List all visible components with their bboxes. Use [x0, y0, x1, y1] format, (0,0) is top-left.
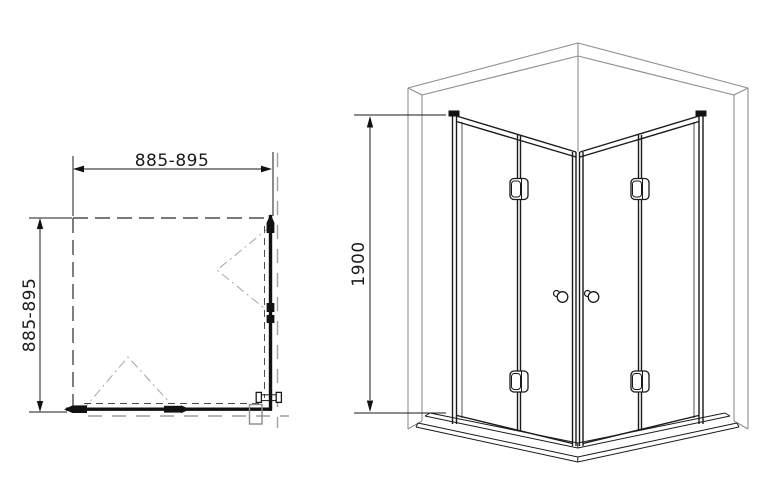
door-hinge-left-bottom — [510, 371, 528, 392]
plan-view: 885-895 885-895 — [20, 151, 289, 428]
door-hinge-right-bottom — [631, 371, 649, 392]
door-knob-left — [554, 291, 568, 303]
plan-outer-wall-lines — [88, 153, 289, 428]
plan-fold-swing-right — [217, 226, 271, 308]
door-knob-right — [585, 291, 599, 303]
plan-width-dimension: 885-895 — [73, 151, 273, 216]
door-hinge-right-top — [631, 179, 649, 200]
height-label: 1900 — [349, 241, 369, 286]
plan-fold-swing-bottom — [82, 357, 171, 411]
right-wall — [578, 43, 748, 429]
shower-tray — [416, 413, 739, 462]
plan-hinge-right-top — [267, 214, 275, 233]
height-dimension: 1900 — [349, 115, 446, 413]
plan-depth-dimension: 885-895 — [20, 218, 72, 412]
glass-frame — [449, 111, 707, 447]
door-hinge-left-top — [510, 179, 528, 200]
plan-wall-edges — [73, 218, 272, 415]
perspective-view: 1900 — [349, 43, 748, 462]
walls — [408, 43, 748, 429]
plan-width-label: 885-895 — [135, 151, 210, 171]
plan-depth-label: 885-895 — [20, 278, 40, 353]
technical-drawing: 885-895 885-895 — [0, 0, 777, 500]
drawing-svg: 885-895 885-895 — [0, 0, 777, 500]
plan-wall-bracket — [250, 405, 263, 425]
plan-hinge-bottom-left — [64, 405, 87, 413]
left-wall — [408, 43, 578, 429]
plan-hinge-bottom-middle — [164, 405, 190, 413]
